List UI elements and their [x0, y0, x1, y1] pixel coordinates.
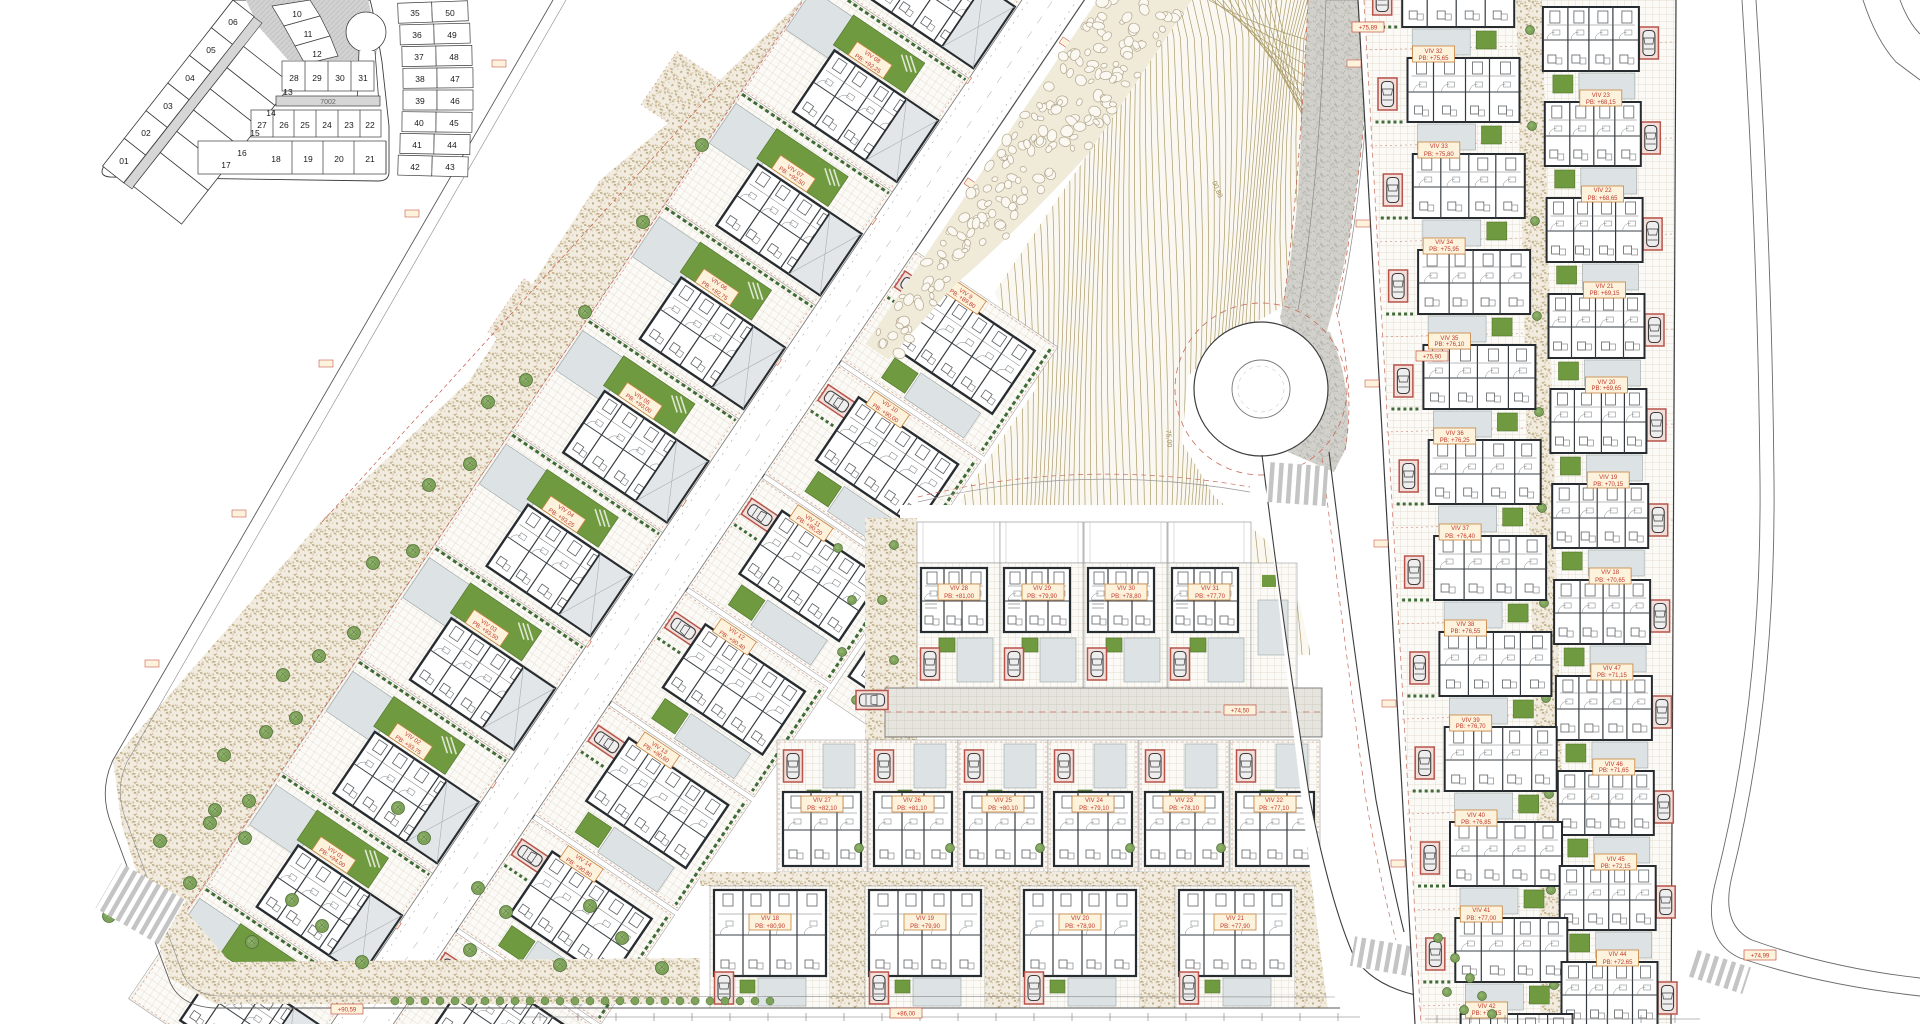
svg-text:17: 17: [221, 160, 231, 170]
svg-text:VIV 23: VIV 23: [1592, 93, 1611, 99]
svg-text:18: 18: [271, 154, 281, 164]
svg-text:PB: +76,40: PB: +76,40: [1445, 534, 1476, 540]
svg-text:35: 35: [410, 8, 420, 18]
svg-text:PB: +72,65: PB: +72,65: [1603, 960, 1634, 966]
svg-text:PB: +77,70: PB: +77,70: [1195, 594, 1226, 600]
svg-text:PB: +79,90: PB: +79,90: [910, 924, 941, 930]
svg-text:PB: +71,65: PB: +71,65: [1599, 768, 1630, 774]
svg-text:PB: +70,15: PB: +70,15: [1593, 482, 1624, 488]
svg-text:24: 24: [322, 120, 332, 130]
svg-text:PB: +70,65: PB: +70,65: [1595, 578, 1626, 584]
svg-text:05: 05: [206, 45, 216, 55]
svg-text:02: 02: [141, 128, 151, 138]
svg-text:VIV 33: VIV 33: [1430, 144, 1449, 150]
svg-text:20: 20: [334, 154, 344, 164]
svg-text:45: 45: [449, 118, 459, 128]
svg-text:40: 40: [414, 118, 424, 128]
svg-text:26: 26: [279, 120, 289, 130]
svg-text:PB: +68,65: PB: +68,65: [1588, 196, 1619, 202]
svg-text:PB: +75,95: PB: +75,95: [1429, 247, 1460, 253]
svg-text:42: 42: [410, 162, 420, 172]
svg-text:06: 06: [228, 17, 238, 27]
svg-text:12: 12: [312, 49, 322, 59]
svg-text:VIV 18: VIV 18: [761, 916, 780, 922]
svg-text:49: 49: [447, 30, 457, 40]
svg-text:VIV 23: VIV 23: [1175, 798, 1194, 804]
svg-text:22: 22: [365, 120, 375, 130]
svg-text:PB: +77,00: PB: +77,00: [1466, 916, 1497, 922]
svg-text:VIV 21: VIV 21: [1226, 916, 1245, 922]
svg-text:VIV 25: VIV 25: [994, 798, 1013, 804]
svg-text:PB: +69,15: PB: +69,15: [1590, 291, 1621, 297]
svg-text:29: 29: [312, 73, 322, 83]
svg-text:23: 23: [344, 120, 354, 130]
svg-text:11: 11: [304, 29, 313, 39]
svg-text:PB: +75,65: PB: +75,65: [1419, 56, 1450, 62]
svg-text:PB: +81,00: PB: +81,00: [944, 594, 975, 600]
svg-text:PB: +76,55: PB: +76,55: [1450, 629, 1481, 635]
svg-text:VIV 31: VIV 31: [1201, 586, 1220, 592]
svg-text:+86,00: +86,00: [897, 1012, 916, 1018]
svg-text:VIV 28: VIV 28: [950, 586, 969, 592]
svg-text:VIV 37: VIV 37: [1451, 526, 1470, 532]
svg-text:PB: +68,15: PB: +68,15: [1586, 100, 1617, 106]
svg-text:04: 04: [185, 73, 195, 83]
svg-text:PB: +69,65: PB: +69,65: [1591, 386, 1622, 392]
svg-text:14: 14: [266, 108, 276, 118]
svg-text:25: 25: [300, 120, 310, 130]
svg-text:PB: +78,80: PB: +78,80: [1111, 594, 1142, 600]
svg-text:PB: +75,80: PB: +75,80: [1424, 152, 1455, 158]
svg-text:48: 48: [449, 52, 459, 62]
svg-text:30: 30: [335, 73, 345, 83]
svg-text:+75,90: +75,90: [1423, 355, 1442, 361]
svg-text:PB: +80,10: PB: +80,10: [988, 806, 1019, 812]
svg-text:VIV 19: VIV 19: [1599, 475, 1618, 481]
svg-text:VIV 32: VIV 32: [1424, 49, 1443, 55]
svg-text:03: 03: [163, 101, 173, 111]
svg-text:VIV 22: VIV 22: [1265, 798, 1284, 804]
svg-text:PB: +77,15: PB: +77,15: [1472, 1011, 1503, 1017]
svg-text:21: 21: [365, 154, 375, 164]
svg-text:VIV 45: VIV 45: [1607, 857, 1626, 863]
svg-text:VIV 47: VIV 47: [1603, 666, 1622, 672]
svg-text:VIV 41: VIV 41: [1472, 908, 1491, 914]
svg-text:PB: +72,15: PB: +72,15: [1601, 864, 1632, 870]
svg-text:PB: +79,10: PB: +79,10: [1079, 806, 1110, 812]
svg-text:39: 39: [415, 96, 425, 106]
svg-text:31: 31: [358, 73, 368, 83]
svg-text:41: 41: [412, 140, 422, 150]
svg-text:PB: +76,10: PB: +76,10: [1434, 342, 1465, 348]
svg-text:16: 16: [237, 148, 247, 158]
svg-text:PB: +81,10: PB: +81,10: [897, 806, 928, 812]
svg-text:VIV 24: VIV 24: [1085, 798, 1104, 804]
svg-text:VIV 38: VIV 38: [1456, 622, 1475, 628]
svg-text:PB: +76,70: PB: +76,70: [1456, 724, 1487, 730]
svg-text:VIV 44: VIV 44: [1608, 952, 1627, 958]
svg-text:VIV 26: VIV 26: [903, 798, 922, 804]
svg-text:PB: +80,90: PB: +80,90: [755, 924, 786, 930]
svg-text:VIV 20: VIV 20: [1071, 916, 1090, 922]
svg-text:PB: +71,15: PB: +71,15: [1597, 673, 1628, 679]
svg-text:PB: +76,85: PB: +76,85: [1461, 820, 1492, 826]
svg-text:50: 50: [445, 8, 455, 18]
svg-text:36: 36: [412, 30, 422, 40]
svg-text:+74,50: +74,50: [1231, 709, 1250, 715]
svg-text:VIV 19: VIV 19: [916, 916, 935, 922]
svg-text:VIV 36: VIV 36: [1446, 431, 1465, 437]
svg-text:13: 13: [283, 87, 293, 97]
svg-text:27: 27: [257, 120, 267, 130]
svg-text:+75,89: +75,89: [1359, 26, 1378, 32]
svg-text:PB: +76,25: PB: +76,25: [1440, 438, 1471, 444]
svg-text:PB: +78,10: PB: +78,10: [1169, 806, 1200, 812]
svg-text:+74,99: +74,99: [1751, 954, 1770, 960]
svg-text:10: 10: [292, 9, 302, 19]
svg-text:VIV 40: VIV 40: [1467, 813, 1486, 819]
svg-text:43: 43: [445, 162, 455, 172]
svg-text:7002: 7002: [320, 99, 336, 106]
svg-text:01: 01: [119, 156, 129, 166]
svg-text:PB: +78,90: PB: +78,90: [1065, 924, 1096, 930]
svg-text:47: 47: [450, 74, 460, 84]
svg-text:VIV 18: VIV 18: [1601, 570, 1620, 576]
svg-text:VIV 34: VIV 34: [1435, 240, 1454, 246]
svg-text:37: 37: [414, 52, 424, 62]
svg-text:44: 44: [447, 140, 457, 150]
svg-text:19: 19: [303, 154, 313, 164]
svg-text:+90,59: +90,59: [338, 1008, 357, 1014]
svg-text:28: 28: [289, 73, 299, 83]
svg-text:PB: +82,10: PB: +82,10: [807, 806, 838, 812]
svg-text:PB: +79,90: PB: +79,90: [1027, 594, 1058, 600]
svg-text:VIV 30: VIV 30: [1117, 586, 1136, 592]
svg-text:PB: +77,90: PB: +77,90: [1220, 924, 1251, 930]
svg-text:VIV 42: VIV 42: [1478, 1004, 1497, 1010]
svg-text:PB: +77,10: PB: +77,10: [1259, 806, 1290, 812]
svg-text:VIV 22: VIV 22: [1594, 188, 1613, 194]
svg-text:VIV 27: VIV 27: [813, 798, 832, 804]
svg-text:VIV 21: VIV 21: [1595, 284, 1614, 290]
svg-text:38: 38: [415, 74, 425, 84]
svg-text:46: 46: [450, 96, 460, 106]
svg-text:VIV 29: VIV 29: [1033, 586, 1052, 592]
